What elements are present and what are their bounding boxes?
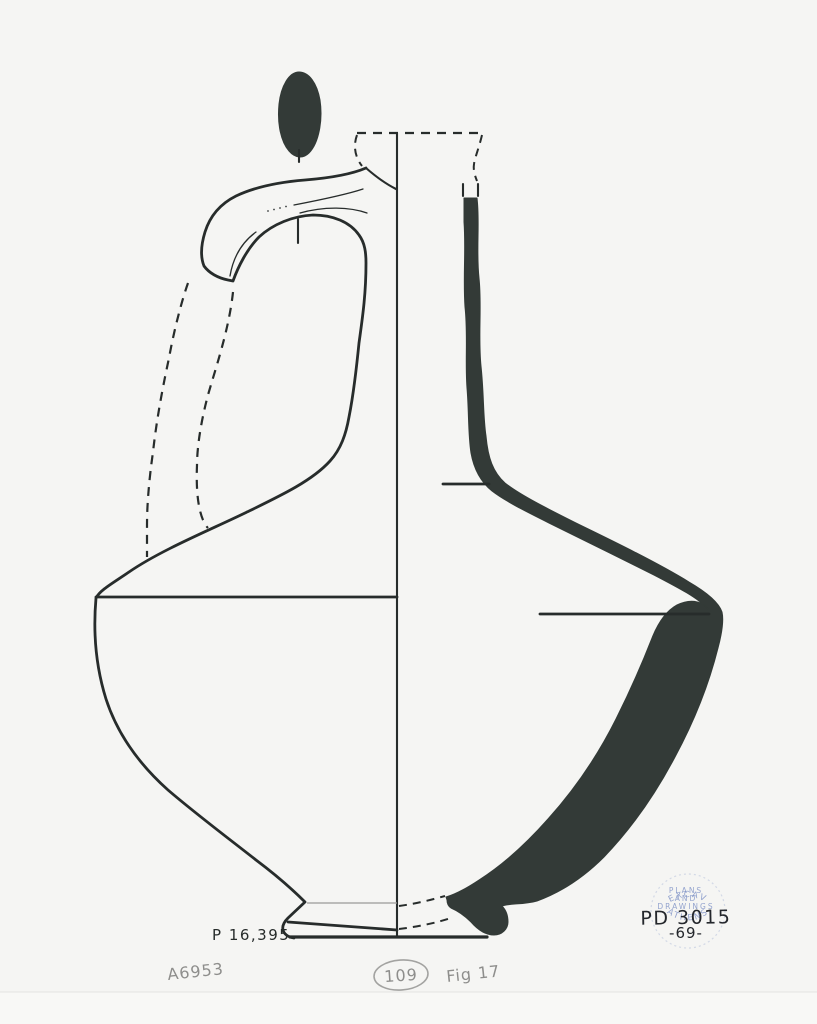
- figure-note-label: Fig 17: [445, 961, 501, 986]
- circled-number: 109: [373, 958, 429, 992]
- handle-attachment-dashed-inner: [197, 292, 233, 528]
- handle-ridge-line-upper: [294, 189, 363, 205]
- rim-right-dashed-edge: [474, 135, 482, 181]
- neck-junction-curve: [366, 168, 396, 189]
- notebook-number-label: A6953: [166, 959, 224, 984]
- drawing-sheet: P 16,395 A6953 109 Fig 17 EXCAV PLANS AN…: [0, 0, 817, 1024]
- handle-attachment-dashed-outer: [147, 283, 188, 557]
- rim-left-dashed-edge: [355, 135, 362, 166]
- handle-ridge-line-lower: [300, 208, 367, 213]
- inventory-number-label: P 16,395: [212, 926, 290, 944]
- excavation-stamp: EXCAV PLANS AND DRAWINGS ATHENS PD 3015 …: [640, 874, 731, 948]
- vessel-profile-drawing: P 16,395 A6953 109 Fig 17 EXCAV PLANS AN…: [0, 0, 817, 1024]
- handle-ridge-dots: [267, 206, 287, 212]
- handle-end-facet-line: [230, 232, 256, 276]
- vessel-left-outline: [95, 168, 366, 938]
- sheet-bottom-margin: [0, 992, 817, 1024]
- handle-rotelle-section: [278, 72, 320, 157]
- circled-number-label: 109: [384, 965, 419, 986]
- foot-inner-line: [288, 922, 397, 930]
- stamp-year: -69-: [669, 924, 703, 942]
- vessel-section-fill: [446, 198, 723, 935]
- base-dashed-lower: [399, 918, 451, 929]
- base-dashed-upper: [399, 896, 445, 906]
